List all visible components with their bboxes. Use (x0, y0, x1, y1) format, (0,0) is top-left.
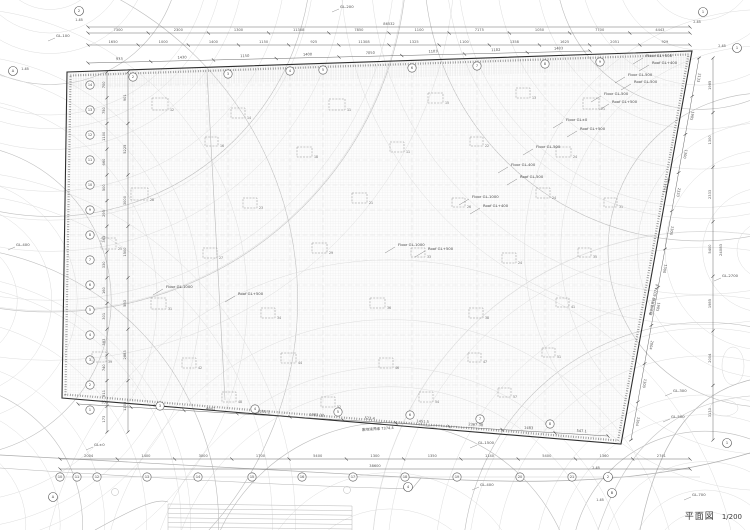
footprint-number: 27 (219, 256, 223, 260)
step-line (168, 509, 352, 511)
grid-bubble-label: 9 (599, 60, 601, 64)
corner-marker-label: 2 (78, 9, 80, 13)
grid-bubble-label: 3 (227, 72, 229, 76)
corner-marker-label: 1 (702, 10, 704, 14)
dimension-value: 330 (102, 261, 106, 269)
spot-elevation-label: GL-400 (480, 482, 494, 487)
contour-line (0, 439, 26, 530)
grid-bubble-label: 6 (409, 413, 411, 417)
dimension-value: 301 (102, 313, 106, 320)
footprint-number: 51 (557, 355, 561, 359)
spot-elevation-label: GL-400 (16, 242, 30, 247)
dimension-value: 365 (102, 236, 106, 243)
dimension-value: 1300 (708, 135, 712, 145)
dimension-chain: 1985130023335400198520043133 (708, 56, 715, 441)
drawing-title: 平面図 1/200 (685, 509, 742, 522)
footprint-number: 24 (552, 196, 556, 200)
level-annotation: Roof GL+500 (428, 246, 454, 251)
dimension-value: 11308 (358, 40, 370, 44)
level-annotation: Roof GL-500 (634, 79, 658, 84)
dimension-value: 5400 (542, 454, 552, 458)
contour-line (0, 0, 149, 54)
dimension-value: 500 (102, 184, 106, 192)
dimension-value: 1100 (415, 28, 425, 32)
dimension-value: 1300 (669, 226, 675, 236)
leader-line (48, 38, 55, 41)
grid-bubble-label: 7 (476, 64, 478, 68)
dimension-value: 3000 (199, 454, 209, 458)
dimension-value: 1150 (240, 54, 250, 58)
footprint-number: 52 (337, 405, 341, 409)
grid-bubble-label: 17 (351, 475, 355, 479)
dimension-value: 1985 (689, 111, 695, 121)
footprint-number: 48 (238, 400, 242, 404)
dimension-value: 1451.5 (416, 419, 429, 424)
footprint-number: 38 (485, 316, 489, 320)
corner-marker-label: 2 (607, 475, 609, 479)
dimension-value: 1050 (535, 28, 545, 32)
dimension-value: 4443 (655, 28, 664, 32)
dimension-chain: 1650100014001150925113081325110013581625… (86, 40, 691, 47)
level-annotation: Floor GL-1000 (398, 242, 425, 247)
footprint-number: 23 (259, 206, 263, 210)
contour-line (0, 382, 83, 530)
level-annotation: Floor GL-500 (604, 91, 629, 96)
footprint-number: 29 (329, 251, 333, 255)
grid-bubble-label: 3 (159, 404, 161, 408)
contour-line (0, 405, 60, 530)
spot-elevation-label: GL-300 (673, 388, 687, 393)
corner-marker-note: 1-4B (21, 67, 28, 71)
step-line (168, 522, 352, 524)
contour-line (645, 0, 750, 20)
dimension-value: 5400 (708, 244, 712, 254)
footprint-number: 36 (387, 306, 391, 310)
dimension-value: 359 (101, 400, 109, 404)
contour-line (615, 0, 750, 50)
dimension-value: 173 (102, 416, 106, 423)
step-line (168, 527, 352, 529)
corner-marker-note: 2-4B (718, 44, 725, 48)
leader-line (472, 487, 479, 490)
dimension-value: 2051 (610, 40, 619, 44)
dimension-value: 86532 (383, 22, 394, 26)
dimension-value: 1140 (485, 454, 495, 458)
footprint-number: 31 (619, 205, 623, 209)
grid-bubble-label: 21 (570, 475, 574, 479)
dimension-value: 1400 (209, 40, 219, 44)
grid-bubble-label: 4 (254, 407, 256, 411)
dimension-value: 1300 (682, 149, 688, 159)
grid-bubble-label: 16 (300, 475, 304, 479)
level-annotation: Roof GL-500 (520, 174, 544, 179)
footprint-number: 22 (485, 144, 489, 148)
footprint-number: 28 (150, 198, 154, 202)
dimension-value: 750 (102, 106, 106, 114)
grid-bubble-label: 5 (89, 308, 91, 312)
dimension-value: 1358 (510, 40, 520, 44)
dimension-value: 583 (102, 339, 106, 346)
step-line (168, 504, 352, 506)
grid-bubble-label: 7 (89, 258, 91, 262)
corner-marker-note: 1-4B (75, 18, 82, 22)
footprint-number: 13 (532, 96, 536, 100)
grid-bubble-label: 10 (88, 183, 92, 187)
level-annotation: Floor GL-1000 (472, 194, 499, 199)
dimension-value: 2741 (657, 454, 666, 458)
dimension-value: 7700 (595, 28, 605, 32)
spot-elevation-label: GL±0 (94, 442, 105, 447)
corner-marker-note: 1-4B (596, 498, 603, 502)
footprint-number: 14 (247, 116, 251, 120)
dimension-value: 7300 (114, 28, 124, 32)
dimension-value: 1000 (159, 40, 169, 44)
footprint-number: 12 (170, 108, 174, 112)
grid-bubble-label: 6 (411, 66, 413, 70)
dimension-value: 2133 (696, 73, 702, 83)
spot-elevation-label: GL-2700 (722, 273, 739, 278)
dimension-value: 1300 (662, 264, 668, 274)
grid-bubble-label: 12 (95, 475, 99, 479)
dimension-value: 3000 (123, 195, 127, 205)
dimension-value: 740 (102, 364, 106, 372)
dimension-value: 1650 (109, 40, 119, 44)
grid-bubble-label: 7 (479, 417, 481, 421)
level-annotation: Floor GL-1000 (166, 284, 193, 289)
dimension-value: 2004 (648, 340, 654, 350)
contour-line (0, 0, 104, 9)
dimension-value: 523.4 (364, 416, 375, 421)
footprint-number: 18 (314, 155, 318, 159)
dimension-value: 1300 (641, 378, 647, 388)
grid-bubble-label: 13 (145, 475, 149, 479)
boundary-label: 敷地境界線 7374.4 (362, 425, 395, 432)
site-plan-canvas: 8653273002300130011308785011007175105077… (0, 0, 750, 530)
corner-marker-note: 2-4B (693, 20, 700, 24)
grid-bubble-label: 18 (403, 475, 407, 479)
level-annotation: Roof GL+400 (483, 203, 509, 208)
footprint-number: 24 (573, 155, 577, 159)
corner-marker-label: 1 (726, 441, 728, 445)
leader-line (470, 445, 477, 448)
footprint-number: 21 (369, 201, 373, 205)
dimension-value: 1182 (491, 48, 500, 52)
dimension-value: 1400 (141, 454, 151, 458)
dimension-value: 1100 (460, 40, 470, 44)
grid-bubble-label: 11 (75, 475, 79, 479)
dimension-chain: 7300230013001130878501100717510507700444… (86, 28, 691, 35)
grid-bubble-label: 20 (518, 475, 522, 479)
dimension-value: 7850 (354, 28, 364, 32)
corner-marker-note: 2-4B (592, 466, 599, 470)
grid-bubble-label: 2 (132, 75, 134, 79)
grid-bubble-label: 14 (88, 83, 92, 87)
contour-line (0, 0, 128, 33)
footprint-number: 57 (513, 395, 517, 399)
footprint-number: 46 (395, 366, 399, 370)
dimension-value: 2883 (123, 350, 127, 359)
corner-marker-label: 1 (736, 46, 738, 50)
dimension-value: 933 (116, 57, 123, 61)
manhole-circle (112, 489, 119, 496)
dimension-value: 295 (102, 210, 106, 217)
level-annotation: Floor GL±0 (566, 117, 588, 122)
footprint-number: 44 (298, 361, 302, 365)
dimension-value: 2333 (676, 187, 682, 197)
level-annotation: Floor GL+500 (646, 53, 673, 58)
dimension-value: 2004 (84, 454, 94, 458)
footprint-number: 54 (435, 400, 439, 404)
leader-line (714, 278, 721, 281)
spot-elevation-label: GL-700 (692, 492, 706, 497)
dimension-value: 1483 (524, 426, 533, 431)
dimension-value: 929 (661, 40, 669, 44)
dimension-value: 1430 (177, 55, 187, 59)
dimension-value: 1108 (123, 401, 127, 411)
grid-bubble-label: 8 (549, 422, 551, 426)
dimension-value: 700 (102, 81, 106, 89)
dimension-value: 1350 (428, 454, 438, 458)
dimension-value: 1325 (410, 40, 419, 44)
drawing-sheet: 8653273002300130011308785011007175105077… (0, 0, 750, 530)
dimension-value: 38600 (369, 464, 381, 468)
dimension-value: 1103 (428, 49, 437, 53)
dimension-chain: 2004140030001700540013001350114054001360… (58, 454, 691, 461)
grid-bubble-label: 5 (337, 410, 339, 414)
dimension-value: 1500 (123, 247, 127, 257)
grid-bubble-label: 14 (196, 475, 200, 479)
grid-bubble-label: 6 (89, 283, 91, 287)
leader-line (332, 9, 339, 12)
grid-bubble-label: 8 (544, 62, 546, 66)
dimension-value: 1625 (560, 40, 569, 44)
grid-bubble-label: 15 (250, 475, 254, 479)
footprint-number: 11 (347, 108, 351, 112)
grid-bubble-label: 8 (89, 233, 91, 237)
dimension-value: 1364 (635, 417, 641, 427)
grid-bubble-label: 13 (88, 108, 92, 112)
dimension-value: 2300 (174, 28, 184, 32)
drawing-scale-text: 1/200 (722, 513, 742, 521)
footprint-number: 15 (445, 101, 449, 105)
dimension-value: 1700 (256, 454, 266, 458)
footprint-number: 16 (220, 144, 224, 148)
footprint-number: 26 (467, 205, 471, 209)
grid-bubble-label: 4 (289, 69, 291, 73)
spot-elevation-label: GL-1500 (478, 440, 495, 445)
dimension-value: 811 (102, 390, 106, 397)
step-line (168, 518, 352, 520)
dimension-value: 1300 (234, 28, 244, 32)
footprint-number: 31 (168, 307, 172, 311)
grid-bubble-label: 9 (89, 208, 91, 212)
manhole-circle (344, 487, 351, 494)
dimension-value: 583 (123, 300, 127, 307)
grid-bubble-label: 11 (88, 158, 92, 162)
footprint-number: 47 (483, 360, 487, 364)
spot-elevation-label: GL-200 (340, 4, 354, 9)
spot-elevation-label: GL-100 (56, 33, 70, 38)
dimension-value: 1400 (303, 52, 313, 56)
grid-bubble-label: 4 (89, 333, 91, 337)
dimension-value: 547.1 (576, 429, 587, 434)
dimension-value: 2333 (708, 190, 712, 199)
footprint-number: 39 (108, 360, 112, 364)
dimension-value: 1300 (370, 454, 380, 458)
dimension-value: 5225 (123, 145, 127, 154)
footprint-number: 24 (518, 261, 522, 265)
dimension-value: 1360 (600, 454, 610, 458)
dimension-value: 3133 (708, 408, 712, 417)
dimension-value: 1150 (259, 40, 269, 44)
dimension-value: 1100 (102, 131, 106, 141)
step-line (168, 513, 352, 515)
footprint-number: 34 (277, 316, 281, 320)
contour-line (722, 347, 744, 385)
footprint-number: 35 (593, 255, 597, 259)
footprint-number: 41 (571, 305, 575, 309)
grid-bubble-label: 5 (322, 68, 324, 72)
grid-bubble-label: 10 (58, 475, 62, 479)
dimension-total: 24083 (718, 243, 723, 256)
drawing-title-text: 平面図 (685, 509, 715, 522)
dimension-value: 4641 (206, 407, 215, 412)
dimension-value: 1985 (708, 299, 712, 308)
footprint-number: 11 (406, 150, 410, 154)
footprint-number: 42 (198, 366, 202, 370)
spot-elevation-label: GL-500 (671, 414, 685, 419)
grid-bubble-label: 1 (89, 408, 91, 412)
dimension-value: 7050 (366, 51, 376, 55)
dimension-value: 1985 (708, 81, 712, 90)
dimension-value: 901 (123, 94, 127, 101)
grid-bubble-label: 2 (89, 383, 91, 387)
dimension-value: 1985 (655, 302, 661, 312)
dimension-value: 11308 (293, 28, 305, 32)
grid-bubble-label: 3 (89, 358, 91, 362)
level-annotation: Roof GL+500 (612, 99, 638, 104)
road-edge (95, 501, 168, 530)
dimension-value: 7175 (475, 28, 484, 32)
dimension-value: 5400 (313, 454, 323, 458)
leader-line (684, 497, 691, 500)
dimension-value: 160 (102, 286, 106, 294)
level-annotation: Floor GL-400 (511, 162, 536, 167)
dimension-value: 925 (310, 40, 317, 44)
grid-bubble-label: 12 (88, 133, 92, 137)
dimension-value: 2004 (708, 353, 712, 363)
dimension-value: 660 (102, 158, 106, 166)
footprint-number: 25 (118, 247, 122, 251)
dimension-value: 1483 (554, 46, 563, 50)
footprint-number: 33 (427, 255, 431, 259)
level-annotation: Roof GL+500 (238, 291, 264, 296)
level-annotation: Floor GL-500 (628, 72, 653, 77)
level-annotation: Floor GL-500 (536, 144, 561, 149)
grid-bubble-label: 19 (455, 475, 459, 479)
level-annotation: Roof GL+400 (652, 60, 678, 65)
level-annotation: Roof GL+500 (580, 126, 606, 131)
